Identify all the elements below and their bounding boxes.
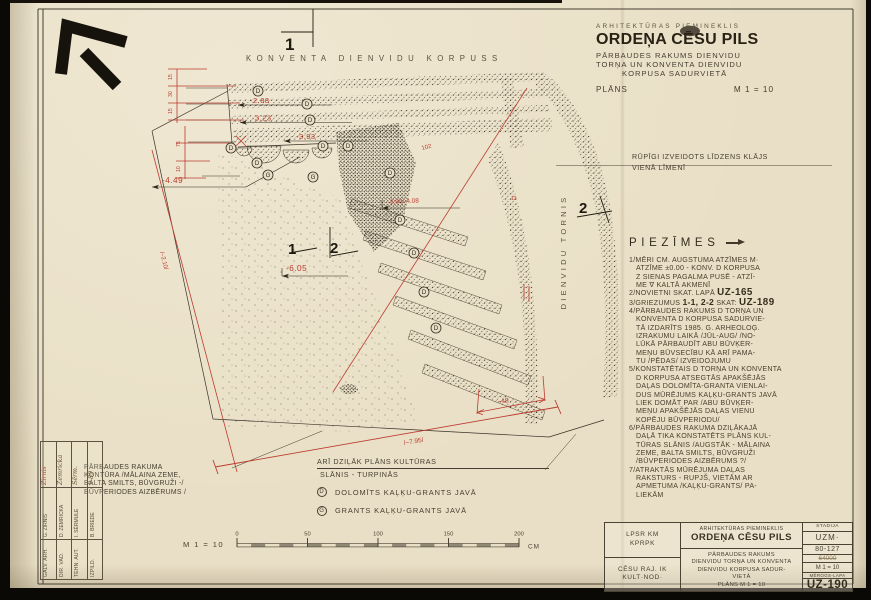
note-line: LIEKĀM <box>629 491 819 499</box>
scale-tick: 50 <box>304 532 310 538</box>
stamp-signature: Sērm. <box>72 442 87 487</box>
north-arrow-icon <box>61 26 126 86</box>
title-block-meta: STADIJA UZM· 80-127 64000 M 1 = 10 MĒROG… <box>803 523 852 591</box>
stamp-row: DIR. VAD. D. ZEMRICKA Zemricka <box>57 442 73 579</box>
note-line: DAĻAS DOLOMĪTA-GRANTA VIENLAI- <box>629 382 819 390</box>
legend-block: ARĪ DZIĻĀK PLĀNS KULTŪRAS SLĀNIS - TURPI… <box>317 457 557 516</box>
stamp-name: I. SĒRMULE <box>72 487 87 539</box>
elevation-label: -6.05 <box>286 264 307 273</box>
notes-title: PIEZĪMES <box>629 237 719 249</box>
title-block-center: ARHITEKTŪRAS PIEMINEKLIS ORDEŅA CĒSU PIL… <box>681 523 803 591</box>
note-line: Z SIENAS PAGALMA PUSĒ - ATZĪ- <box>629 273 819 281</box>
scalebar-label: M 1 = 10 <box>183 540 224 549</box>
wall-label: KONVENTA DIENVIDU KORPUSS <box>246 54 503 63</box>
stamp-signature: Zirnis <box>41 442 56 487</box>
legend-entry-dolomite: D DOLOMĪTS KAĻĶU-GRANTS JAVĀ <box>317 487 557 497</box>
contour-line: BŪVPERIODES AIZBĒRUMS / <box>84 489 256 497</box>
material-d: D <box>256 88 261 95</box>
material-d: D <box>255 160 260 167</box>
note-line: MEŅU BŪVSECĪBU KĀ ARĪ PAMA- <box>629 349 819 357</box>
note-line: TŪRAS SLĀNIS /AUGSTĀK - MĀLAINA <box>629 441 819 449</box>
legend-entry-label: DOLOMĪTS KAĻĶU-GRANTS JAVĀ <box>335 488 477 497</box>
notes-header: PIEZĪMES <box>629 237 819 249</box>
section-number: 1 <box>288 241 296 258</box>
signature-stamp: GALV. ARH. G. ZIRNIS Zirnis DIR. VAD. D.… <box>40 441 103 580</box>
header-block: ARHITEKTŪRAS PIEMINEKLIS ORDEŅA CĒSU PIL… <box>596 23 818 94</box>
stamp-name: D. ZEMRICKA <box>57 487 72 539</box>
section-number: 2 <box>330 240 338 257</box>
note-line: RAKSTURS - RUPJŠ, VIETĀM AR <box>629 474 819 482</box>
note-line: D KORPUSA ATSEGTĀS APAKŠĒJĀS <box>629 374 819 382</box>
stamp-row: TEHN. AUT. I. SĒRMULE Sērm. <box>72 442 88 579</box>
org-bottom: CĒSU RAJ. IK KULT·NOD· <box>605 558 680 592</box>
plan-scale-row: PLĀNS M 1 = 10 <box>596 85 774 94</box>
note-line: LIEK DOMĀT PAR /ABU BŪVĶER- <box>629 399 819 407</box>
header-subtitle: KORPUSA SADURVIETĀ <box>596 69 818 78</box>
material-g: G <box>266 172 271 179</box>
stamp-role: GALV. ARH. <box>41 539 56 579</box>
plan-label: PLĀNS <box>596 85 628 94</box>
legend-entry-label: GRANTS KAĻĶU-GRANTS JAVĀ <box>335 506 467 515</box>
note-line: TU /PĒDAS/ IZVEIDOJUMU <box>629 357 819 365</box>
material-d: D <box>398 217 403 224</box>
note-line: MEŅU APAKŠĒJĀS DAĻAS VIENU <box>629 407 819 415</box>
note-line: TĀ IZDARĪTS 1985. G. ARHEOLOĢ. <box>629 324 819 332</box>
tb-title: ORDEŅA CĒSU PILS <box>681 532 802 543</box>
chain-label: 75 <box>176 141 182 147</box>
elevation-label: -3.98/-4.08 <box>388 197 420 206</box>
note-line: /BŪVPERIODES AIZBĒRUMS ?/ <box>629 457 819 465</box>
scale-tick: 100 <box>373 532 383 538</box>
chain-label: 30 <box>168 91 174 97</box>
material-d: D <box>321 143 326 150</box>
page-title: ORDEŅA CĒSU PILS <box>596 31 818 49</box>
tb-sub-line: VIETĀ <box>681 574 802 581</box>
material-d: D <box>308 117 313 124</box>
note-line: 7/ATRAKTĀS MŪRĒJUMA DAĻAS <box>629 466 819 474</box>
org-line: KULT·NOD· <box>622 574 662 583</box>
elevation-label: -4.49 <box>162 176 183 185</box>
note-text: 3/GRIEZUMUS <box>629 299 680 307</box>
section-ref: 1-1, 2-2 <box>682 297 714 307</box>
stamp-signature: Zemricka <box>57 442 72 487</box>
note-line: KOPĒJU BŪVPERIODU/ <box>629 416 819 424</box>
level-note: RŪPĪGI IZVEIDOTS LĪDZENS KLĀJS VIENĀ LĪM… <box>632 152 847 174</box>
chain-label: 15 <box>168 108 174 114</box>
chain-label: 15 <box>168 74 174 80</box>
org-line: KPRPK <box>630 540 655 549</box>
stamp-role: DIR. VAD. <box>57 539 72 579</box>
note-line: 1/MĒRI CM. AUGSTUMA ATZĪMES M· <box>629 256 819 264</box>
stamp-row: GALV. ARH. G. ZIRNIS Zirnis <box>41 442 57 579</box>
sheet-number: UZ-190 <box>803 579 852 591</box>
scale-value: M 1 = 10 <box>734 85 774 94</box>
elevation-label: -3.23 <box>252 114 272 123</box>
dolomite-symbol-icon: D <box>317 487 327 497</box>
dim-label: 13 <box>511 196 517 202</box>
dim-label: 102 <box>421 144 433 152</box>
legend-entry-gravel: G GRANTS KAĻĶU-GRANTS JAVĀ <box>317 506 557 516</box>
note-line: 6/PĀRBAUDES RAKUMA DZIĻĀKAJĀ <box>629 424 819 432</box>
org-top: LPSR KM KPRPK <box>605 523 680 558</box>
stamp-role: TEHN. AUT. <box>72 539 87 579</box>
header-eyebrow: ARHITEKTŪRAS PIEMINEKLIS <box>596 23 818 30</box>
object-code: 80-127 <box>803 545 852 555</box>
title-block: LPSR KM KPRPK CĒSU RAJ. IK KULT·NOD· ARH… <box>604 522 853 592</box>
legend-title-line2: SLĀNIS - TURPINĀS <box>320 470 557 479</box>
stamp-date: 9-89 <box>88 442 103 487</box>
dim-label: /~7.95/ <box>403 437 424 447</box>
stamp-row: IZPILD. B. BRIEDE 9-89 <box>88 442 103 579</box>
org-line: CĒSU RAJ. IK <box>618 566 667 575</box>
note-line: LŪKĀ PĀRBAUDĪT ABU BŪVĶER- <box>629 340 819 348</box>
scale-tick: 150 <box>444 532 454 538</box>
material-d: D <box>229 145 234 152</box>
elevation-label: -2.88 <box>250 96 270 105</box>
stage-value: UZM· <box>803 532 852 545</box>
sheet-ref: UZ-189 <box>739 297 775 308</box>
contour-line: PĀRBAUDES RAKUMA <box>84 464 256 472</box>
level-note-line2: VIENĀ LĪMENĪ <box>632 163 847 174</box>
title-block-subject: PĀRBAUDES RAKUMS DIENVIDU TORŅA UN KONVE… <box>681 549 802 591</box>
note-line: 2/NOVIETNI SKAT. LAPĀ UZ-165 <box>629 289 819 297</box>
tb-sub-line: PLĀNS M 1 = 10 <box>681 582 802 589</box>
level-note-line1: RŪPĪGI IZVEIDOTS LĪDZENS KLĀJS <box>632 152 847 163</box>
title-block-project: ARHITEKTŪRAS PIEMINEKLIS ORDEŅA CĒSU PIL… <box>681 523 802 549</box>
material-d: D <box>346 143 351 150</box>
legend-title-line1: ARĪ DZIĻĀK PLĀNS KULTŪRAS <box>317 457 549 469</box>
section-number: 2 <box>579 200 587 217</box>
header-subtitle: PĀRBAUDES RAKUMS DIENVIDU <box>596 51 818 60</box>
section-number: 1 <box>285 35 294 54</box>
note-line: DAĻĀ TIKA KONSTATĒTS PLĀNS KUL- <box>629 432 819 440</box>
note-line: 3/GRIEZUMUS 1-1, 2-2 SKAT: UZ-189 <box>629 298 819 307</box>
material-g: G <box>311 174 316 181</box>
object-code-old: 64000 <box>803 555 852 564</box>
scale-bar: 0 50 100 150 200 CM <box>235 532 540 551</box>
stamp-name: B. BRIEDE <box>88 487 103 539</box>
note-line: KONVENTA D KORPUSA SADURVIE- <box>629 315 819 323</box>
header-subtitle: TORŅA UN KONVENTA DIENVIDU <box>596 60 818 69</box>
stamp-role: IZPILD. <box>88 539 103 579</box>
note-line: APMETUMA /KAĻĶU-GRANTS/ PA- <box>629 482 819 490</box>
title-block-orgs: LPSR KM KPRPK CĒSU RAJ. IK KULT·NOD· <box>605 523 681 591</box>
tb-scale: M 1 = 10 <box>803 563 852 573</box>
pen-mark-icon <box>726 242 739 244</box>
tb-sub-line: PĀRBAUDES RAKUMS <box>681 552 802 559</box>
scale-unit: CM <box>528 544 540 551</box>
note-text: SKAT: <box>716 299 736 307</box>
contour-line: BALTA SMILTS, BŪVGRUŽI -/ <box>84 480 256 488</box>
note-line: DUS MŪRĒJUMS KAĻĶU-GRANTS JAVĀ <box>629 391 819 399</box>
tb-sub-line: DIENVIDU TORŅA UN KONVENTA <box>681 559 802 566</box>
material-d: D <box>305 101 310 108</box>
material-d: D <box>412 250 417 257</box>
material-d: D <box>388 170 393 177</box>
material-d: D <box>422 289 427 296</box>
scanned-sheet-page: -2.88 -3.23 -3.93 -4.49 -6.05 -3.98/-4.0… <box>0 0 871 600</box>
elevation-label: -3.93 <box>296 132 316 141</box>
note-line: 4/PĀRBAUDES RAKUMS D TORŅA UN <box>629 307 819 315</box>
chain-label: 10 <box>176 166 182 172</box>
note-line: ATZĪME ±0.00 - KONV. D KORPUSA <box>629 264 819 272</box>
stage-label: STADIJA <box>803 523 852 532</box>
gravel-symbol-icon: G <box>317 506 327 516</box>
scale-tick: 200 <box>514 532 524 538</box>
note-line: 5/KONSTATĒTAIS D TORŅA UN KONVENTA <box>629 365 819 373</box>
dim-label: /~2.10/ <box>158 251 168 271</box>
tower-label: DIENVIDU TORNIS <box>559 195 568 310</box>
stamp-name: G. ZIRNIS <box>41 487 56 539</box>
note-line: ZEME, BALTA SMILTS, BŪVGRUŽI <box>629 449 819 457</box>
scale-tick: 0 <box>235 532 238 538</box>
org-line: LPSR KM <box>626 531 659 540</box>
material-d: D <box>434 325 439 332</box>
contour-note: PĀRBAUDES RAKUMA KONTŪRA /MĀLAINA ZEME, … <box>84 464 256 497</box>
notes-block: PIEZĪMES 1/MĒRI CM. AUGSTUMA ATZĪMES M· … <box>629 237 819 499</box>
